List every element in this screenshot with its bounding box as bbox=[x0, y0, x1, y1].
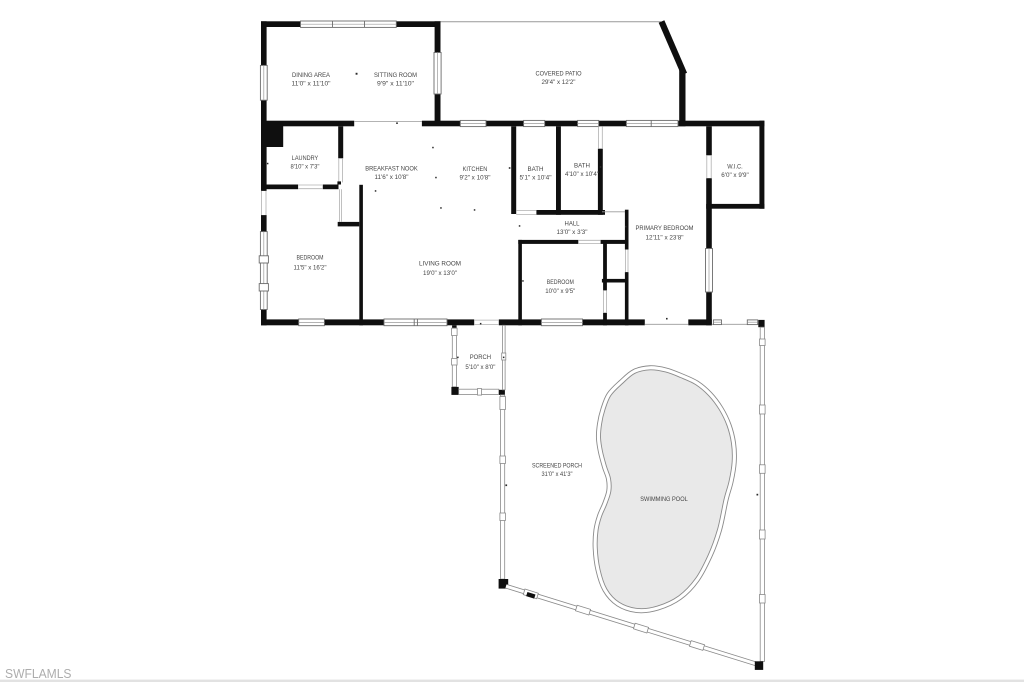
svg-text:COVERED PATIO: COVERED PATIO bbox=[536, 71, 582, 78]
svg-text:8'10" x 7'3": 8'10" x 7'3" bbox=[291, 164, 320, 171]
svg-text:BEDROOM: BEDROOM bbox=[297, 255, 324, 262]
svg-text:W.I.C.: W.I.C. bbox=[727, 164, 743, 171]
svg-text:BATH: BATH bbox=[528, 166, 544, 173]
svg-text:19'0" x 13'0": 19'0" x 13'0" bbox=[423, 270, 457, 277]
svg-text:10'0" x 9'5": 10'0" x 9'5" bbox=[545, 288, 575, 295]
svg-text:4'10" x 10'4": 4'10" x 10'4" bbox=[565, 171, 599, 178]
svg-text:DINING AREA: DINING AREA bbox=[292, 72, 331, 79]
svg-text:SWIMMING POOL: SWIMMING POOL bbox=[640, 496, 688, 503]
svg-text:HALL: HALL bbox=[565, 221, 580, 228]
svg-text:BEDROOM: BEDROOM bbox=[547, 279, 574, 286]
svg-text:29'4" x 12'2": 29'4" x 12'2" bbox=[542, 79, 576, 86]
svg-text:11'0" x 11'10": 11'0" x 11'10" bbox=[292, 81, 331, 88]
svg-text:6'0" x 9'9": 6'0" x 9'9" bbox=[721, 172, 749, 179]
svg-text:BREAKFAST NOOK: BREAKFAST NOOK bbox=[365, 165, 418, 172]
svg-text:BATH: BATH bbox=[574, 163, 590, 170]
svg-text:SCREENED PORCH: SCREENED PORCH bbox=[532, 462, 582, 469]
svg-text:9'9" x 11'10": 9'9" x 11'10" bbox=[377, 81, 414, 88]
svg-text:SITTING ROOM: SITTING ROOM bbox=[374, 72, 417, 79]
svg-text:12'11" x 23'8": 12'11" x 23'8" bbox=[646, 235, 684, 242]
svg-text:LIVING ROOM: LIVING ROOM bbox=[419, 261, 461, 268]
svg-text:13'0" x 3'3": 13'0" x 3'3" bbox=[557, 229, 588, 236]
svg-text:11'5" x 16'2": 11'5" x 16'2" bbox=[294, 265, 327, 272]
svg-text:LAUNDRY: LAUNDRY bbox=[292, 155, 319, 162]
svg-text:PRIMARY BEDROOM: PRIMARY BEDROOM bbox=[636, 225, 694, 232]
svg-text:5'10" x 8'0": 5'10" x 8'0" bbox=[465, 364, 495, 371]
svg-text:KITCHEN: KITCHEN bbox=[463, 166, 488, 173]
svg-text:31'0" x 41'3": 31'0" x 41'3" bbox=[542, 471, 573, 478]
svg-text:5'1" x 10'4": 5'1" x 10'4" bbox=[520, 174, 552, 181]
svg-text:PORCH: PORCH bbox=[470, 354, 492, 361]
svg-text:SWFLAMLS: SWFLAMLS bbox=[5, 667, 72, 681]
svg-text:11'6" x 10'8": 11'6" x 10'8" bbox=[375, 174, 409, 181]
svg-text:9'2" x 10'8": 9'2" x 10'8" bbox=[460, 174, 491, 181]
